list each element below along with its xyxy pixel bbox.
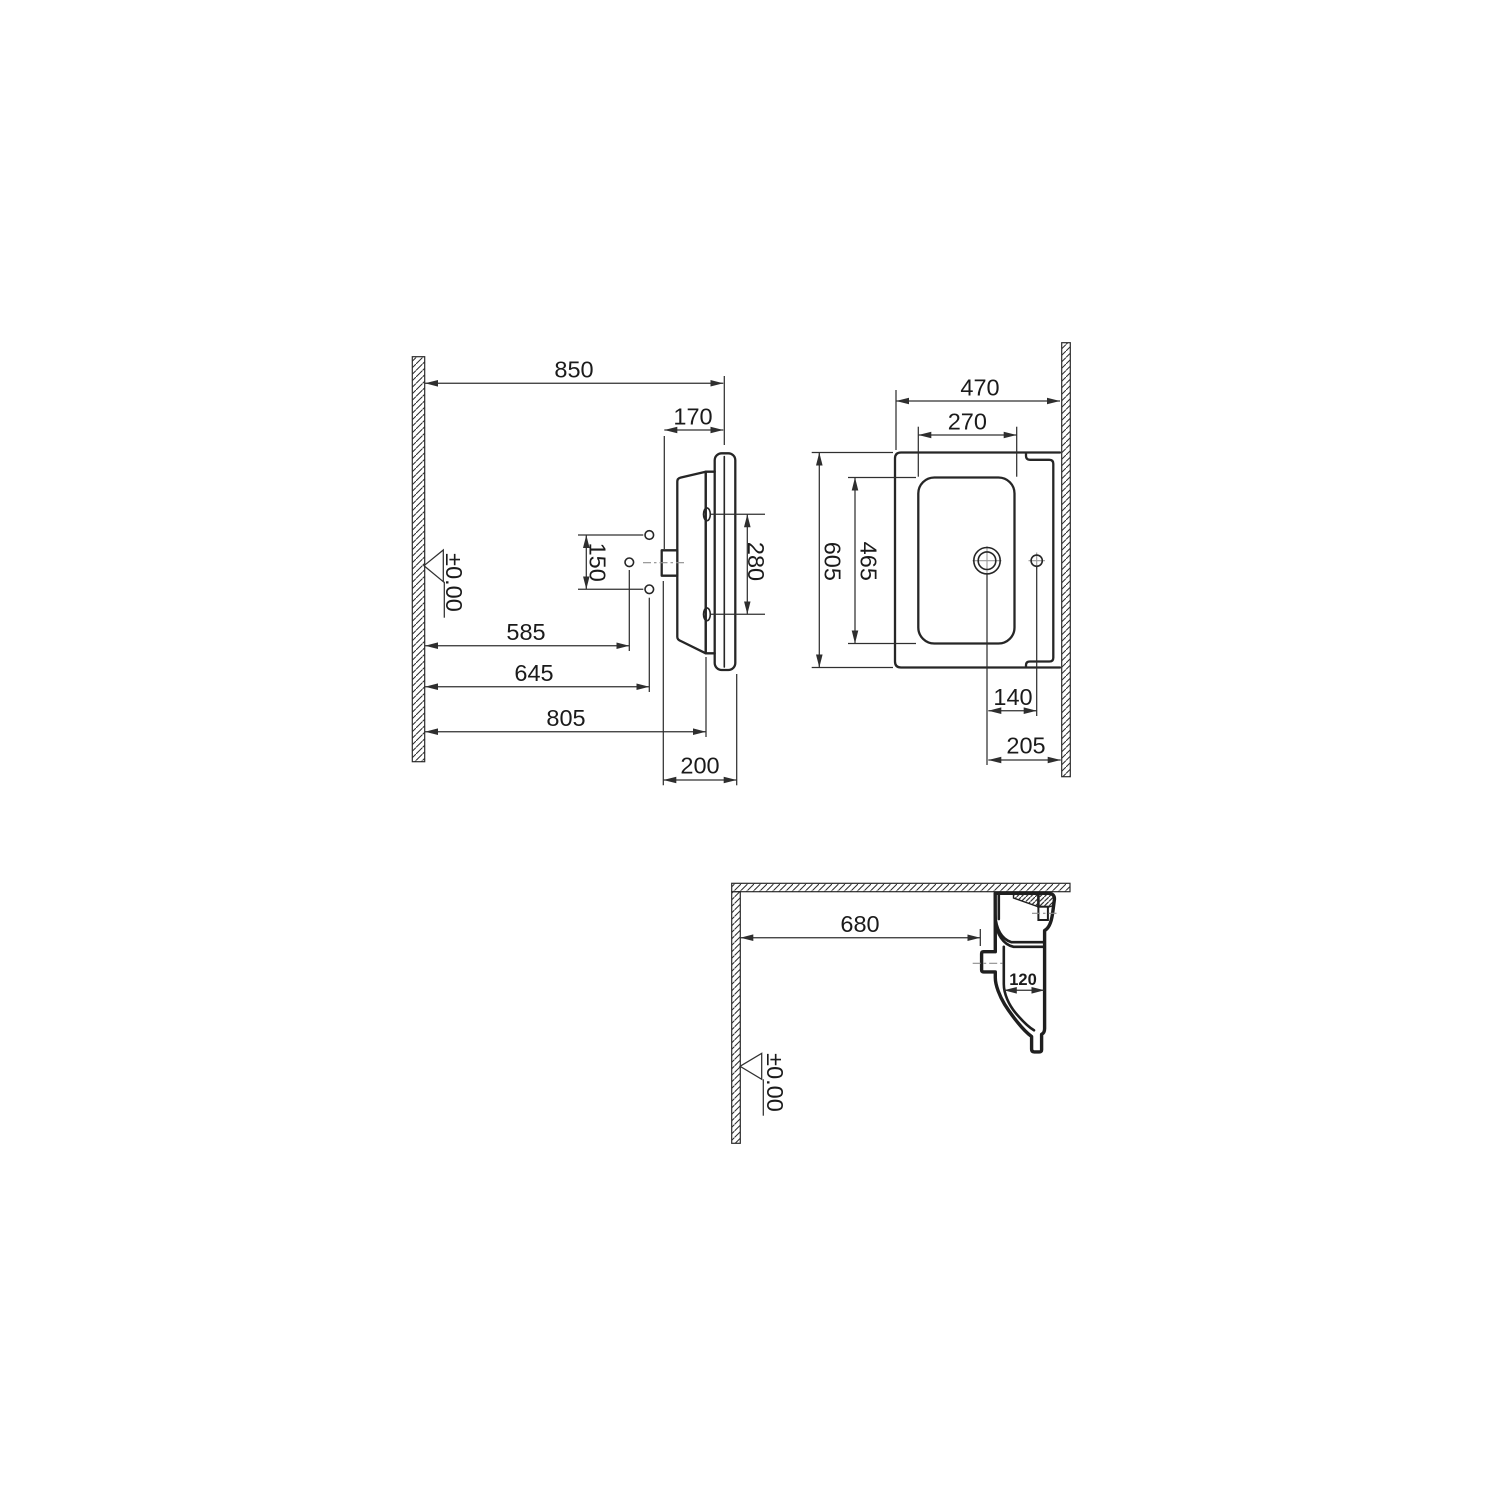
dim-270-label: 270 — [948, 408, 987, 434]
background — [0, 0, 1500, 1500]
dim-850-label: 850 — [554, 357, 593, 383]
dim-280-label: 280 — [743, 542, 769, 581]
dim-465-label: 465 — [856, 542, 882, 581]
dim-140-label: 140 — [993, 684, 1032, 710]
plan-wall-hatch — [1062, 343, 1071, 777]
dim-680-label: 680 — [840, 911, 879, 937]
dim-170-label: 170 — [673, 404, 712, 430]
dim-470-label: 470 — [960, 375, 999, 401]
section-side-wall-hatch — [732, 892, 741, 1144]
dim-805-label: 805 — [546, 705, 585, 731]
dim-150-label: 150 — [585, 543, 611, 582]
section-mounting-wall-hatch — [732, 883, 1070, 891]
dim-205-label: 205 — [1006, 733, 1045, 759]
side-datum-label: ±0.00 — [441, 553, 467, 612]
dim-605-label: 605 — [820, 542, 846, 581]
section-datum-label: ±0.00 — [762, 1053, 788, 1112]
dim-200-label: 200 — [680, 753, 719, 779]
dim-585-label: 585 — [506, 619, 545, 645]
dim-120-label: 120 — [1009, 971, 1037, 989]
dim-645-label: 645 — [514, 660, 553, 686]
washbasin-installation-drawing: 850 170 150 280 585 — [0, 0, 1500, 1500]
side-wall-hatch — [412, 357, 424, 762]
dim-140: 140 — [988, 684, 1036, 711]
technical-drawing-page: 850 170 150 280 585 — [0, 0, 1500, 1500]
